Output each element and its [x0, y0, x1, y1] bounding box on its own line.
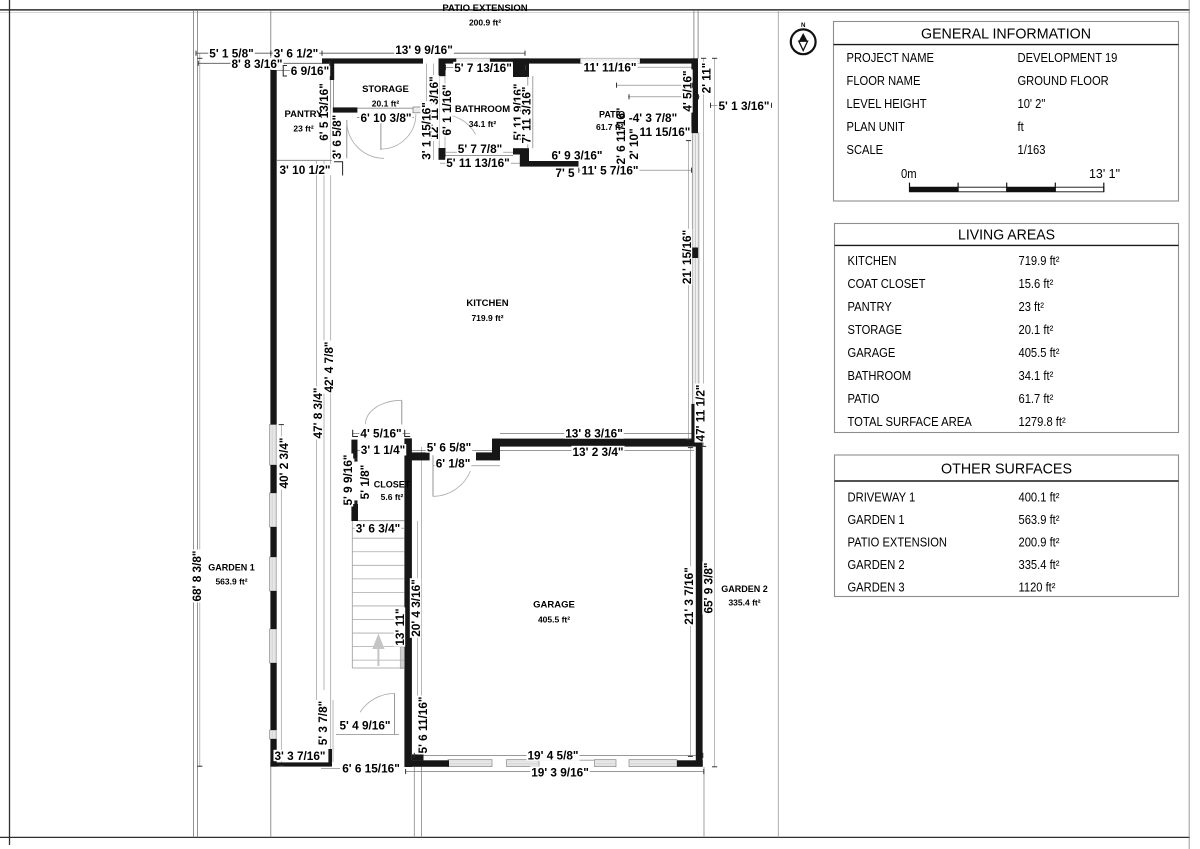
svg-text:CLOSET: CLOSET — [374, 480, 411, 490]
svg-text:3' 1 1/4": 3' 1 1/4" — [361, 443, 405, 457]
svg-text:PATIO: PATIO — [599, 110, 625, 120]
svg-text:2' 11": 2' 11" — [699, 63, 713, 94]
svg-text:10' 2": 10' 2" — [1018, 96, 1046, 111]
svg-text:6' 10 3/8": 6' 10 3/8" — [360, 111, 411, 125]
svg-text:GARDEN 3: GARDEN 3 — [848, 579, 905, 594]
svg-text:5' 6 11/16": 5' 6 11/16" — [416, 697, 430, 754]
svg-text:GROUND FLOOR: GROUND FLOOR — [1018, 73, 1109, 88]
svg-text:3' 6 3/4": 3' 6 3/4" — [356, 521, 400, 535]
svg-text:DRIVEWAY 1: DRIVEWAY 1 — [848, 489, 916, 504]
svg-text:47' 8 3/4": 47' 8 3/4" — [311, 387, 325, 438]
svg-text:5' 9 9/16": 5' 9 9/16" — [341, 454, 355, 505]
svg-text:21' 3 7/16": 21' 3 7/16" — [682, 567, 696, 625]
svg-text:2' 10": 2' 10" — [627, 128, 641, 159]
svg-text:COAT CLOSET: COAT CLOSET — [848, 276, 926, 291]
svg-text:47' 11 1/2": 47' 11 1/2" — [693, 385, 707, 442]
svg-text:0m: 0m — [901, 166, 917, 181]
svg-text:13' 1": 13' 1" — [1089, 166, 1120, 181]
svg-text:STORAGE: STORAGE — [362, 84, 409, 95]
svg-text:PATIO EXTENSION: PATIO EXTENSION — [442, 3, 527, 14]
svg-text:13' 9 9/16": 13' 9 9/16" — [395, 43, 453, 57]
svg-text:1279.8 ft²: 1279.8 ft² — [1019, 414, 1067, 429]
svg-text:5' 6 5/8": 5' 6 5/8" — [427, 440, 471, 454]
svg-text:405.5 ft²: 405.5 ft² — [1019, 345, 1061, 360]
svg-text:PANTRY: PANTRY — [285, 109, 324, 120]
svg-text:5' 4 9/16": 5' 4 9/16" — [339, 718, 390, 732]
svg-text:N: N — [801, 22, 806, 29]
svg-text:6' 9 3/16": 6' 9 3/16" — [551, 148, 602, 162]
svg-text:-11 15/16": -11 15/16" — [636, 125, 691, 139]
svg-text:SCALE: SCALE — [847, 142, 884, 157]
svg-text:BATHROOM: BATHROOM — [455, 104, 510, 115]
svg-text:OTHER SURFACES: OTHER SURFACES — [941, 461, 1072, 477]
svg-text:KITCHEN: KITCHEN — [466, 298, 508, 309]
svg-text:3' 3 7/16": 3' 3 7/16" — [274, 749, 325, 763]
svg-text:34.1 ft²: 34.1 ft² — [469, 119, 497, 129]
svg-text:5' 7 7/8": 5' 7 7/8" — [458, 142, 502, 156]
svg-text:7' 5: 7' 5 — [555, 166, 575, 180]
svg-text:GARDEN 1: GARDEN 1 — [848, 512, 905, 527]
svg-text:563.9 ft²: 563.9 ft² — [215, 577, 247, 587]
svg-text:13' 8 3/16": 13' 8 3/16" — [565, 426, 623, 440]
svg-text:6' 1/8": 6' 1/8" — [436, 457, 471, 471]
svg-text:20.1 ft²: 20.1 ft² — [1019, 322, 1054, 337]
svg-text:PLAN UNIT: PLAN UNIT — [847, 119, 905, 134]
svg-text:11' 5 7/16": 11' 5 7/16" — [582, 163, 639, 177]
svg-text:PATIO: PATIO — [848, 391, 880, 406]
svg-text:42' 4 7/8": 42' 4 7/8" — [322, 341, 336, 392]
svg-text:40' 2 3/4": 40' 2 3/4" — [277, 437, 291, 488]
svg-text:4' 5/16": 4' 5/16" — [680, 70, 694, 111]
svg-text:19' 4 5/8": 19' 4 5/8" — [527, 748, 578, 762]
svg-text:335.4 ft²: 335.4 ft² — [1019, 557, 1061, 572]
svg-text:61.7 ft²: 61.7 ft² — [596, 122, 624, 132]
svg-text:5' 1/8": 5' 1/8" — [358, 465, 372, 500]
svg-text:23 ft²: 23 ft² — [293, 124, 313, 134]
svg-text:23 ft²: 23 ft² — [1019, 299, 1045, 314]
svg-text:405.5 ft²: 405.5 ft² — [538, 615, 570, 625]
svg-text:GARDEN 2: GARDEN 2 — [848, 557, 905, 572]
svg-text:563.9 ft²: 563.9 ft² — [1019, 512, 1061, 527]
svg-text:GENERAL INFORMATION: GENERAL INFORMATION — [921, 26, 1091, 42]
svg-text:200.9 ft²: 200.9 ft² — [469, 18, 501, 28]
svg-text:21' 15/16": 21' 15/16" — [680, 230, 694, 284]
svg-text:335.4 ft²: 335.4 ft² — [728, 598, 760, 608]
svg-text:5.6 ft²: 5.6 ft² — [381, 492, 404, 502]
svg-text:-4' 3 7/8": -4' 3 7/8" — [629, 111, 677, 125]
svg-text:5' 11 13/16": 5' 11 13/16" — [446, 156, 510, 170]
svg-text:DEVELOPMENT 19: DEVELOPMENT 19 — [1018, 50, 1118, 65]
svg-text:13' 11": 13' 11" — [393, 608, 407, 645]
svg-text:13' 2 3/4": 13' 2 3/4" — [572, 445, 623, 459]
svg-text:1/163: 1/163 — [1018, 142, 1046, 157]
svg-text:PROJECT NAME: PROJECT NAME — [847, 50, 935, 65]
svg-text:68' 8 3/8": 68' 8 3/8" — [190, 550, 204, 601]
svg-text:5' 1 3/16": 5' 1 3/16" — [718, 99, 769, 113]
svg-text:15.6 ft²: 15.6 ft² — [1019, 276, 1054, 291]
svg-text:STORAGE: STORAGE — [848, 322, 903, 337]
svg-text:PANTRY: PANTRY — [848, 299, 892, 314]
svg-text:6 9/16": 6 9/16" — [291, 64, 329, 78]
svg-text:200.9 ft²: 200.9 ft² — [1019, 534, 1061, 549]
svg-text:LEVEL HEIGHT: LEVEL HEIGHT — [847, 96, 927, 111]
svg-text:400.1 ft²: 400.1 ft² — [1019, 489, 1061, 504]
svg-text:7' 11 3/16": 7' 11 3/16" — [519, 87, 533, 144]
svg-text:34.1 ft²: 34.1 ft² — [1019, 368, 1054, 383]
svg-text:65' 9 3/8": 65' 9 3/8" — [701, 562, 715, 613]
svg-text:BATHROOM: BATHROOM — [848, 368, 912, 383]
svg-text:KITCHEN: KITCHEN — [848, 253, 897, 268]
svg-text:6' 1 1/16": 6' 1 1/16" — [440, 84, 454, 135]
svg-text:GARAGE: GARAGE — [848, 345, 896, 360]
svg-text:11' 11/16": 11' 11/16" — [583, 60, 636, 74]
svg-text:GARDEN 1: GARDEN 1 — [208, 563, 255, 573]
svg-text:719.9 ft²: 719.9 ft² — [471, 313, 503, 323]
svg-text:PATIO EXTENSION: PATIO EXTENSION — [848, 534, 948, 549]
svg-text:1120 ft²: 1120 ft² — [1019, 579, 1057, 594]
svg-text:LIVING AREAS: LIVING AREAS — [958, 228, 1055, 244]
svg-text:5' 3 7/8": 5' 3 7/8" — [316, 701, 330, 745]
svg-text:19' 3 9/16": 19' 3 9/16" — [531, 765, 589, 779]
svg-text:FLOOR NAME: FLOOR NAME — [847, 73, 921, 88]
svg-text:61.7 ft²: 61.7 ft² — [1019, 391, 1054, 406]
svg-text:3' 6 1/2": 3' 6 1/2" — [274, 46, 318, 60]
svg-text:3' 1 15/16": 3' 1 15/16" — [419, 102, 433, 160]
svg-text:3' 10 1/2": 3' 10 1/2" — [279, 163, 330, 177]
svg-text:20.1 ft²: 20.1 ft² — [372, 99, 400, 109]
svg-text:TOTAL SURFACE AREA: TOTAL SURFACE AREA — [848, 414, 972, 429]
svg-text:5' 7 13/16": 5' 7 13/16" — [454, 61, 512, 75]
svg-text:GARDEN 2: GARDEN 2 — [721, 584, 768, 594]
svg-text:GARAGE: GARAGE — [533, 600, 575, 611]
svg-text:20' 4 3/16": 20' 4 3/16" — [409, 579, 423, 637]
svg-text:3' 6 5/8": 3' 6 5/8" — [330, 115, 344, 159]
svg-text:ft: ft — [1018, 119, 1024, 134]
svg-text:719.9 ft²: 719.9 ft² — [1019, 253, 1061, 268]
svg-text:4' 5/16": 4' 5/16" — [360, 426, 401, 440]
svg-text:6' 6 15/16": 6' 6 15/16" — [342, 762, 400, 776]
